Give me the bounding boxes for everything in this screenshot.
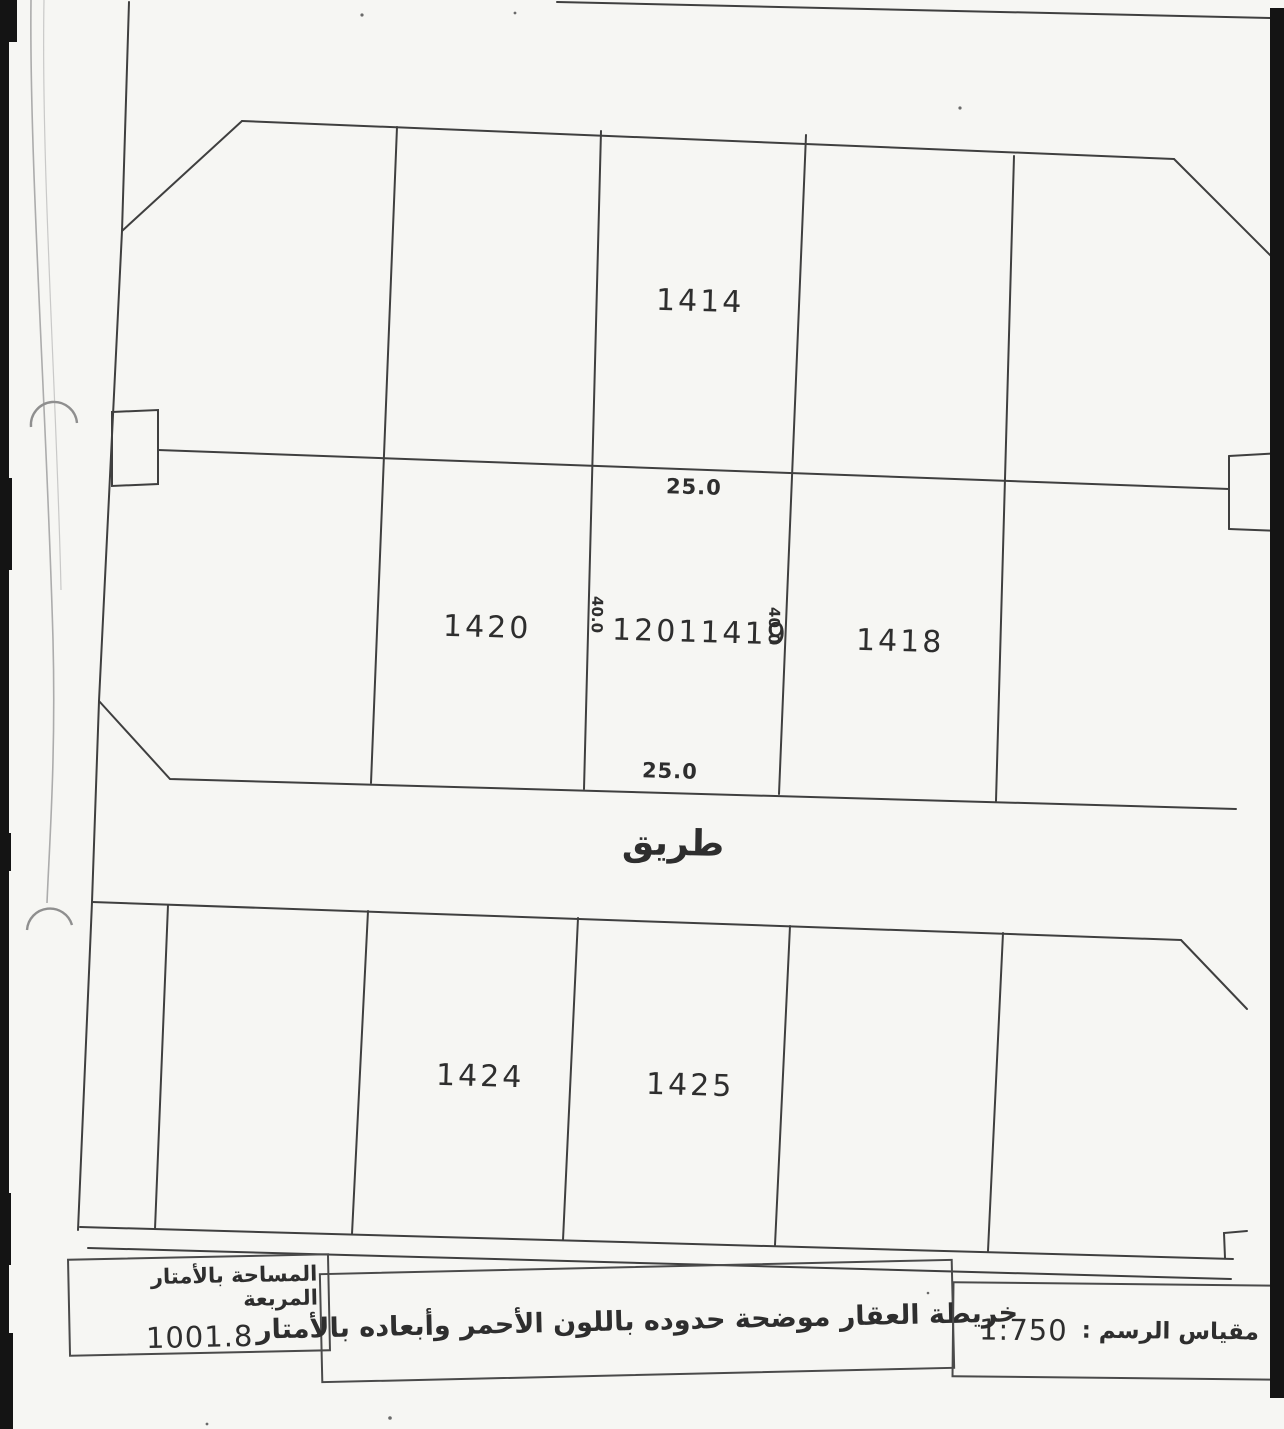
map-note: خريطة العقار موضحة حدوده باللون الأحمر و… — [256, 1297, 1019, 1345]
sheet-top-edge-line — [557, 2, 1270, 18]
map-note-box: خريطة العقار موضحة حدوده باللون الأحمر و… — [319, 1259, 955, 1383]
scanned-survey-document: 1414 25.0 1420 40.0 12011419 40.0 1418 2… — [0, 0, 1284, 1429]
left-monument-box — [112, 410, 158, 486]
dim-depth-left: 40.0 — [589, 596, 605, 633]
dim-bottom-width: 25.0 — [642, 760, 698, 783]
road-label: طريق — [622, 825, 725, 863]
right-monument-box — [1229, 453, 1281, 531]
dim-depth-right: 40.0 — [766, 607, 782, 644]
scale-label: مقياس الرسم : — [1082, 1318, 1260, 1346]
dim-top-width: 25.0 — [666, 476, 722, 499]
interior-boundaries-upper — [371, 127, 1014, 801]
plot-label-1424: 1424 — [436, 1061, 525, 1093]
plot-label-1419-group: 12011419 — [612, 616, 789, 651]
upper-block-outline — [122, 121, 1282, 267]
scale-box: مقياس الرسم : 1:750 — [952, 1281, 1284, 1380]
plot-label-1420: 1420 — [443, 612, 532, 644]
left-boundary-line — [78, 2, 129, 1230]
plot-label-1425: 1425 — [646, 1070, 735, 1102]
upper-block-south-edge — [99, 701, 1236, 809]
plot-1419-case-number: 1201 — [612, 613, 701, 650]
interior-boundaries-lower — [155, 905, 1003, 1251]
scale-value: 1:750 — [979, 1313, 1068, 1348]
plot-label-1414: 1414 — [656, 286, 745, 318]
plot-label-1418: 1418 — [856, 626, 945, 658]
area-label: المساحة بالأمتار المربعة — [69, 1255, 328, 1314]
survey-map-linework — [0, 0, 1284, 1429]
